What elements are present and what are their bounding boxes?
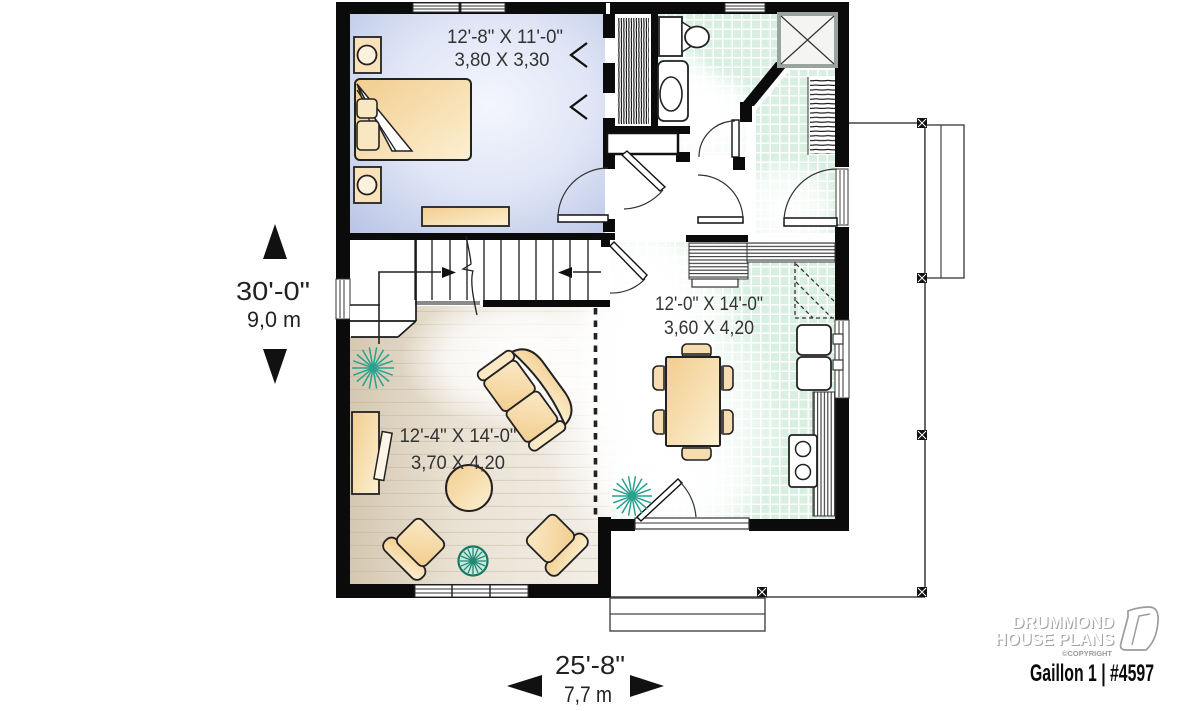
svg-text:3,80 X 3,30: 3,80 X 3,30 bbox=[455, 50, 550, 71]
svg-text:©COPYRIGHT: ©COPYRIGHT bbox=[1062, 649, 1113, 658]
svg-text:HOUSE PLANS: HOUSE PLANS bbox=[995, 629, 1114, 649]
svg-text:30'-0": 30'-0" bbox=[236, 276, 310, 306]
svg-text:12'-0" X 14'-0": 12'-0" X 14'-0" bbox=[655, 294, 763, 315]
svg-text:25'-8": 25'-8" bbox=[555, 650, 625, 680]
svg-text:3,70 X 4,20: 3,70 X 4,20 bbox=[411, 453, 505, 474]
svg-text:Gaillon 1 | #4597: Gaillon 1 | #4597 bbox=[1030, 660, 1154, 687]
svg-text:7,7 m: 7,7 m bbox=[564, 682, 612, 707]
svg-text:12'-8" X 11'-0": 12'-8" X 11'-0" bbox=[447, 27, 563, 48]
svg-text:3,60 X 4,20: 3,60 X 4,20 bbox=[664, 318, 754, 339]
svg-text:12'-4" X 14'-0": 12'-4" X 14'-0" bbox=[400, 426, 517, 447]
svg-text:9,0 m: 9,0 m bbox=[247, 307, 301, 332]
